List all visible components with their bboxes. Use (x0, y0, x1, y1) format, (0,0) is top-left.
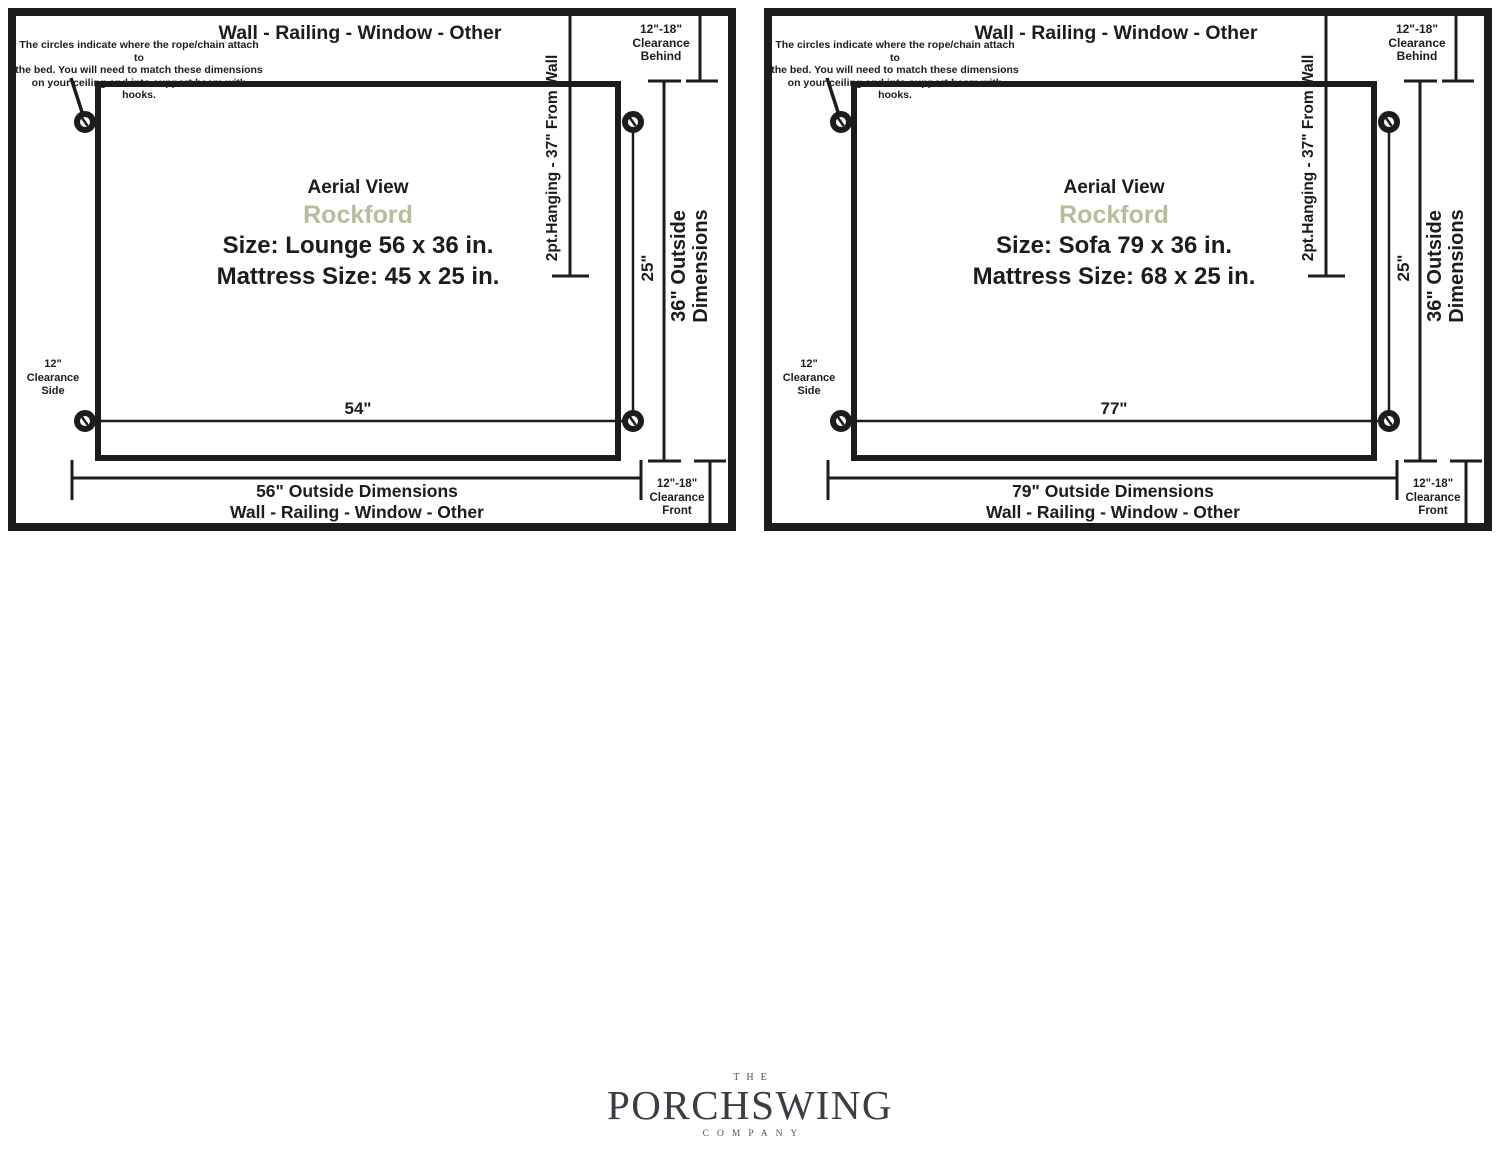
attach-depth-label: 25" (1394, 238, 1414, 298)
brand-logo: THE PORCHSWING COMPANY (0, 1072, 1500, 1139)
clearance-side-line-1: 12" (10, 358, 96, 372)
attachment-point-top-left (833, 114, 849, 130)
attach-width-label: 77" (851, 399, 1377, 418)
outside-width-block: 79" Outside Dimensions Wall - Railing - … (806, 481, 1420, 523)
clearance-behind-line-3: Behind (1373, 50, 1461, 64)
hanging-label: 2pt.Hanging - 37" From Wall (544, 43, 562, 273)
clearance-behind-line-1: 12"-18" (617, 23, 705, 37)
clearance-behind-label: 12"-18" Clearance Behind (1373, 23, 1461, 64)
clearance-front-label: 12"-18" Clearance Front (638, 478, 716, 519)
clearance-side-line-2: Clearance (766, 372, 852, 386)
product-name: Rockford (95, 200, 621, 230)
outside-depth-line-1: 36" Outside (1424, 176, 1446, 356)
mattress-size-label: Mattress Size: 68 x 25 in. (851, 261, 1377, 292)
attachment-note: The circles indicate where the rope/chai… (770, 39, 1020, 102)
clearance-behind-label: 12"-18" Clearance Behind (617, 23, 705, 64)
mattress-size-label: Mattress Size: 45 x 25 in. (95, 261, 621, 292)
clearance-side-label: 12" Clearance Side (766, 358, 852, 399)
clearance-front-line-3: Front (638, 505, 716, 519)
outside-depth-label: 36" Outside Dimensions (1424, 176, 1468, 356)
aerial-view-label: Aerial View (95, 176, 621, 200)
clearance-front-line-2: Clearance (638, 492, 716, 506)
clearance-front-line-2: Clearance (1394, 492, 1472, 506)
clearance-behind-line-3: Behind (617, 50, 705, 64)
clearance-behind-line-2: Clearance (617, 37, 705, 51)
outside-depth-line-1: 36" Outside (668, 176, 690, 356)
logo-company: COMPANY (0, 1129, 1500, 1139)
clearance-front-line-1: 12"-18" (1394, 478, 1472, 492)
bed-info-block: Aerial View Rockford Size: Lounge 56 x 3… (95, 176, 621, 292)
note-line-2: the bed. You will need to match these di… (14, 64, 264, 77)
clearance-side-line-3: Side (10, 385, 96, 399)
size-label: Size: Sofa 79 x 36 in. (851, 230, 1377, 261)
outside-depth-line-2: Dimensions (690, 176, 712, 356)
clearance-side-line-1: 12" (766, 358, 852, 372)
aerial-view-label: Aerial View (851, 176, 1377, 200)
note-line-1: The circles indicate where the rope/chai… (14, 39, 264, 64)
note-line-3: on your ceiling and into support beam wi… (770, 77, 1020, 102)
attachment-point-top-right (625, 114, 641, 130)
diagram-panel-sofa: Wall - Railing - Window - Other The circ… (764, 8, 1492, 531)
hanging-label: 2pt.Hanging - 37" From Wall (1300, 43, 1318, 273)
size-label: Size: Lounge 56 x 36 in. (95, 230, 621, 261)
attach-width-label: 54" (95, 399, 621, 418)
product-name: Rockford (851, 200, 1377, 230)
outside-width-label: 56" Outside Dimensions (50, 481, 664, 502)
outside-depth-label: 36" Outside Dimensions (668, 176, 712, 356)
attachment-point-top-right (1381, 114, 1397, 130)
clearance-side-line-2: Clearance (10, 372, 96, 386)
attachment-note: The circles indicate where the rope/chai… (14, 39, 264, 102)
wall-label-bottom: Wall - Railing - Window - Other (806, 502, 1420, 523)
clearance-side-line-3: Side (766, 385, 852, 399)
note-line-1: The circles indicate where the rope/chai… (770, 39, 1020, 64)
clearance-behind-line-1: 12"-18" (1373, 23, 1461, 37)
note-line-3: on your ceiling and into support beam wi… (14, 77, 264, 102)
wall-label-bottom: Wall - Railing - Window - Other (50, 502, 664, 523)
logo-name: PORCHSWING (0, 1084, 1500, 1127)
outside-depth-line-2: Dimensions (1446, 176, 1468, 356)
clearance-front-label: 12"-18" Clearance Front (1394, 478, 1472, 519)
clearance-front-line-3: Front (1394, 505, 1472, 519)
attachment-point-bottom-right (1381, 413, 1397, 429)
outside-width-label: 79" Outside Dimensions (806, 481, 1420, 502)
attachment-point-bottom-left (77, 413, 93, 429)
clearance-behind-line-2: Clearance (1373, 37, 1461, 51)
note-line-2: the bed. You will need to match these di… (770, 64, 1020, 77)
attachment-point-bottom-right (625, 413, 641, 429)
clearance-front-line-1: 12"-18" (638, 478, 716, 492)
attachment-point-bottom-left (833, 413, 849, 429)
attach-depth-label: 25" (638, 238, 658, 298)
attachment-point-top-left (77, 114, 93, 130)
bed-info-block: Aerial View Rockford Size: Sofa 79 x 36 … (851, 176, 1377, 292)
diagram-panel-lounge: Wall - Railing - Window - Other The circ… (8, 8, 736, 531)
clearance-side-label: 12" Clearance Side (10, 358, 96, 399)
outside-width-block: 56" Outside Dimensions Wall - Railing - … (50, 481, 664, 523)
